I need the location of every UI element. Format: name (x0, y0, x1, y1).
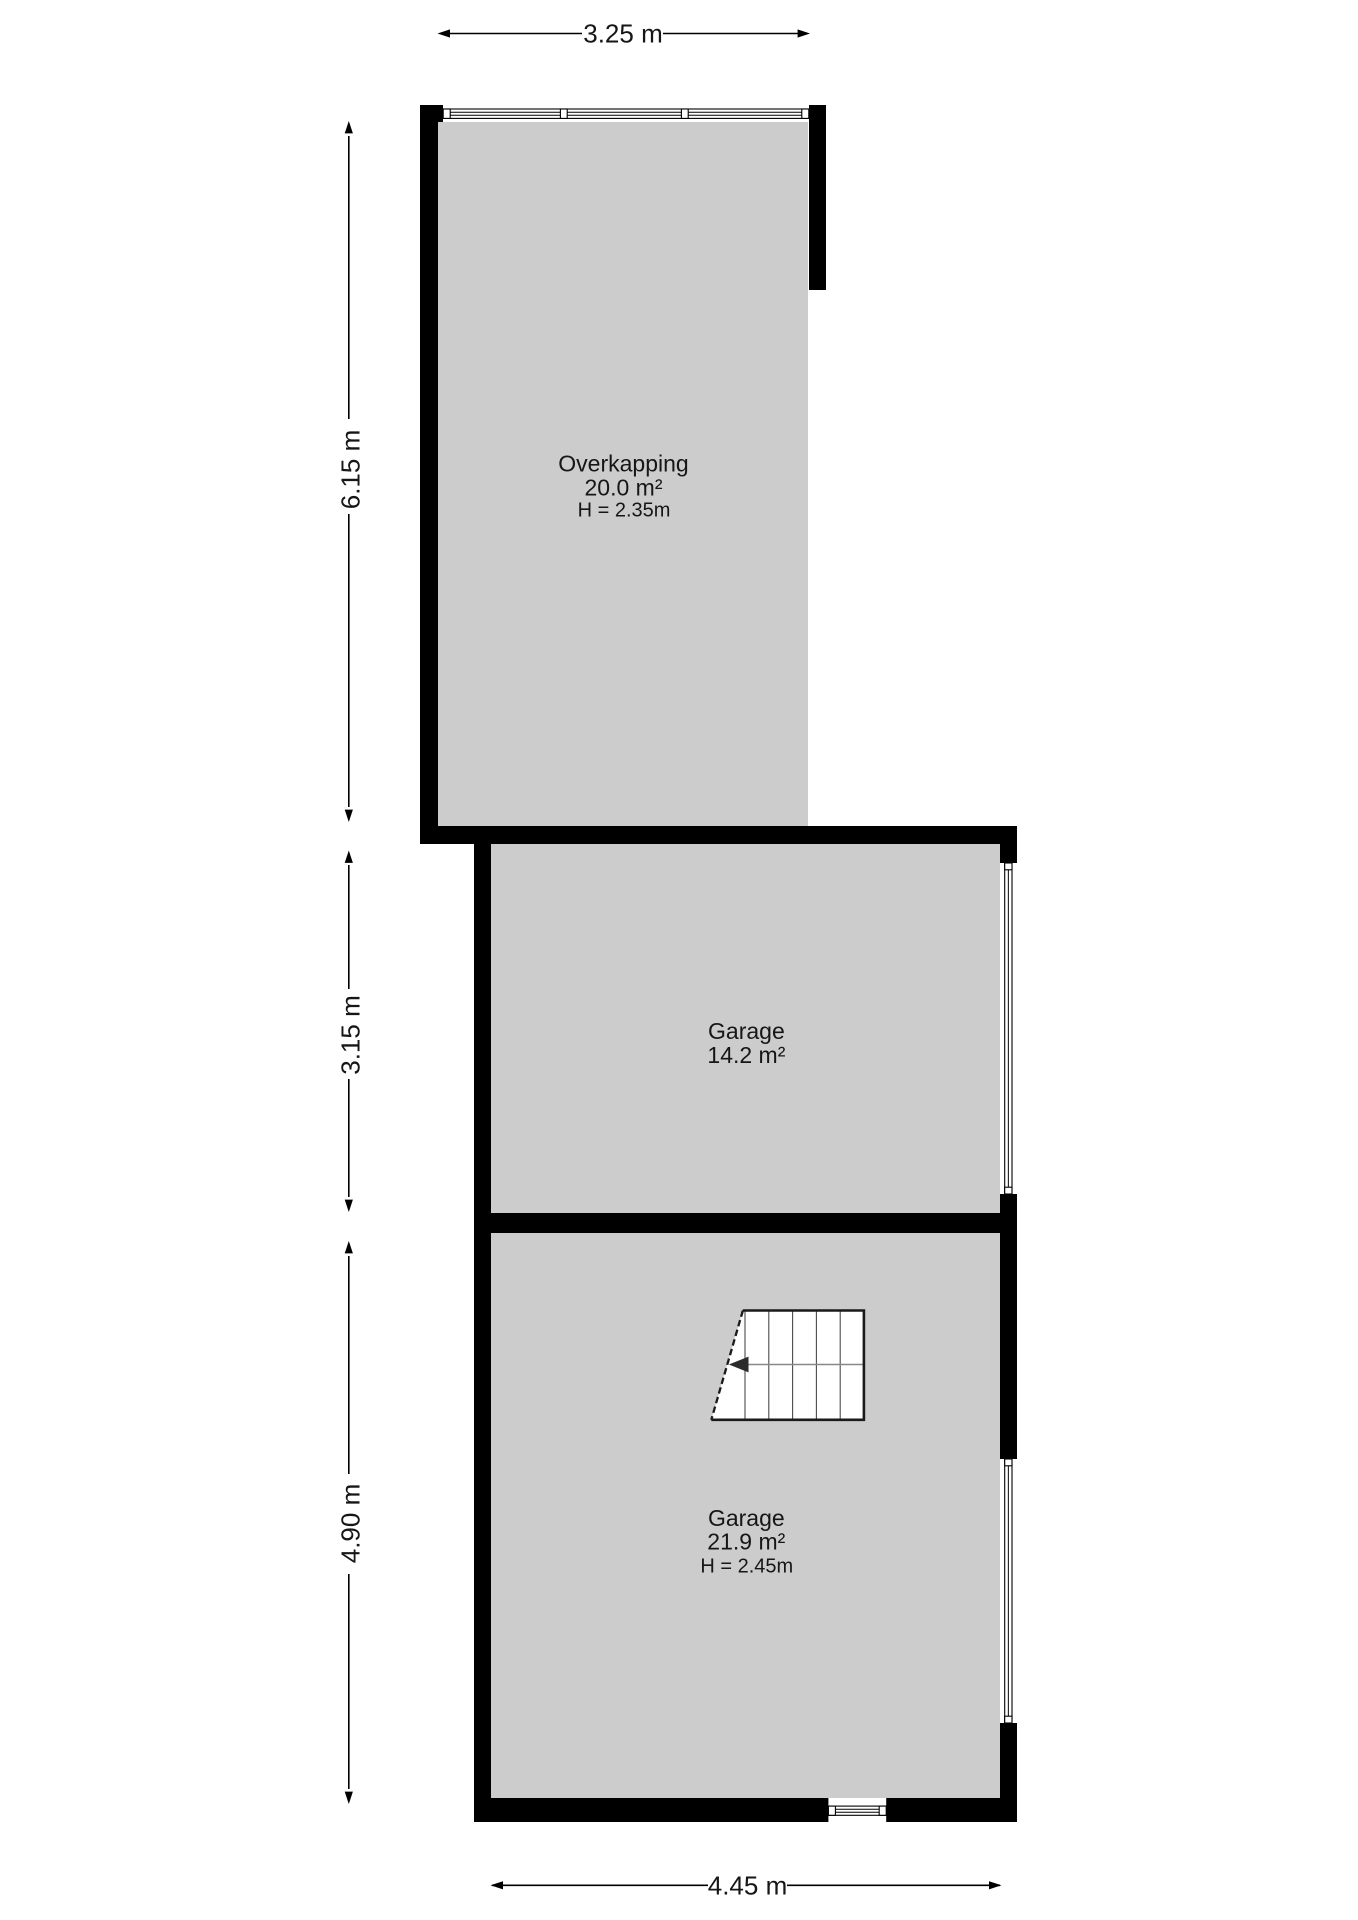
svg-text:4.45 m: 4.45 m (708, 1870, 788, 1900)
svg-text:H = 2.45m: H = 2.45m (700, 1555, 793, 1577)
svg-text:4.90 m: 4.90 m (336, 1484, 366, 1564)
svg-text:14.2 m²: 14.2 m² (707, 1042, 785, 1068)
svg-text:Overkapping: Overkapping (558, 451, 688, 477)
svg-text:21.9 m²: 21.9 m² (707, 1529, 785, 1555)
svg-text:3.25 m: 3.25 m (583, 19, 663, 49)
svg-text:H = 2.35m: H = 2.35m (578, 500, 671, 522)
svg-text:Garage: Garage (708, 1018, 785, 1044)
svg-text:6.15 m: 6.15 m (336, 430, 366, 510)
svg-text:20.0 m²: 20.0 m² (585, 475, 663, 501)
svg-text:Garage: Garage (708, 1505, 785, 1531)
svg-text:3.15 m: 3.15 m (336, 995, 366, 1075)
